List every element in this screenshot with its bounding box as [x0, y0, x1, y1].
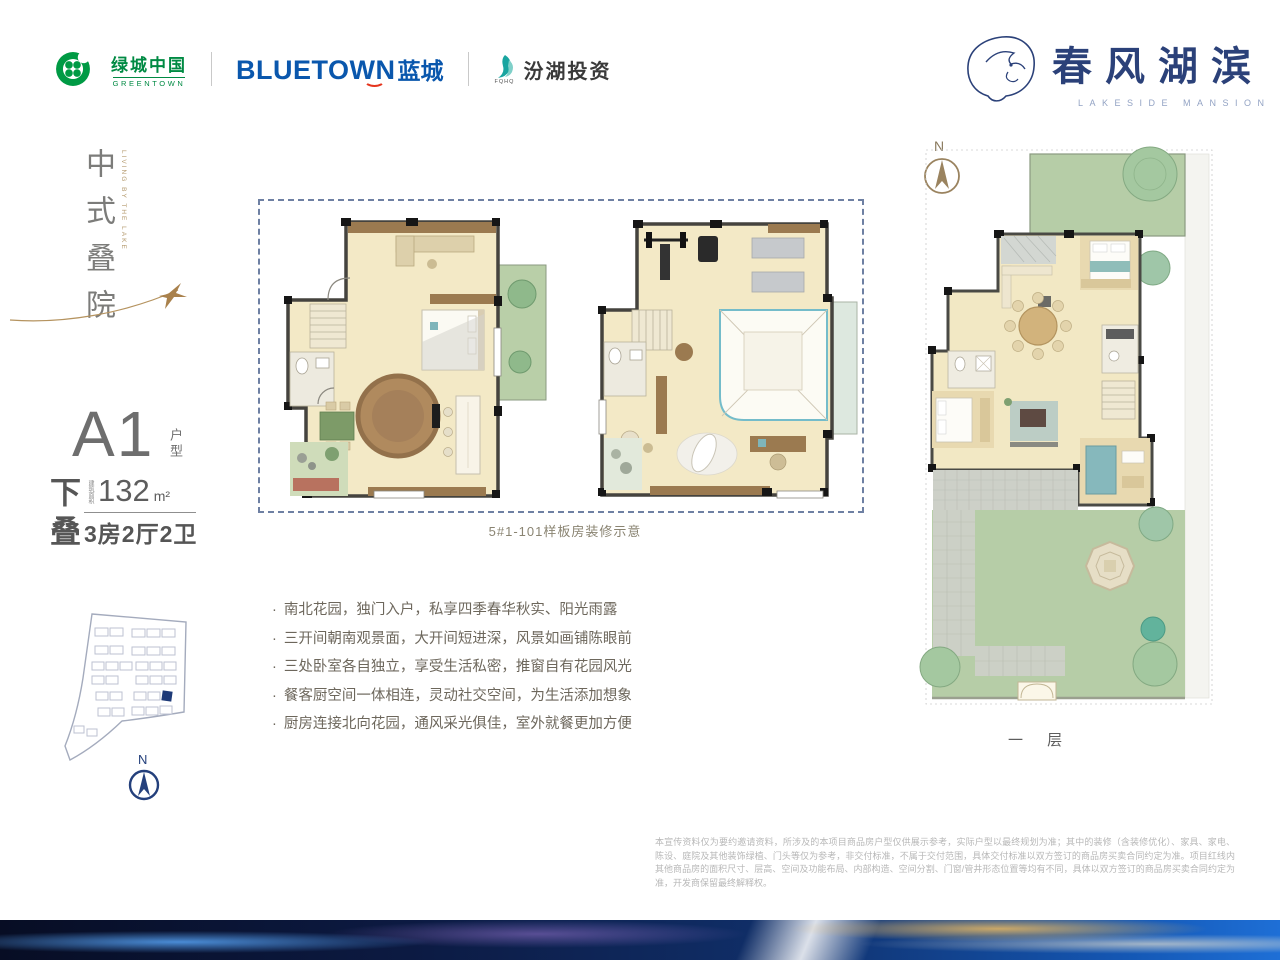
brand-name-en: LAKESIDE MANSION — [1078, 98, 1271, 108]
bed — [422, 310, 484, 370]
brand-bird-icon — [964, 34, 1040, 106]
greentown-name-cn: 绿城中国 — [111, 51, 187, 76]
ground-floor-plan — [918, 146, 1218, 726]
greentown-name-en: GREENTOWN — [113, 77, 186, 88]
partner-logos: 绿城中国 GREENTOWN BLUETOWN 蓝城 FQHQ 汾湖投资 — [55, 46, 612, 92]
feature-item: 餐客厨空间一体相连，灵动社交空间，为生活添加想象 — [272, 682, 612, 711]
fenhu-logo-icon — [493, 54, 517, 80]
bluetown-logo: BLUETOWN 蓝城 — [236, 52, 444, 86]
feature-item: 三处卧室各自独立，享受生活私密，推窗自有花园风光 — [272, 653, 612, 682]
feature-item: 南北花园，独门入户，私享四季春华秋实、阳光雨露 — [272, 596, 612, 625]
bathroom — [290, 352, 334, 406]
bedroom-southeast — [1080, 438, 1150, 503]
terrace-pavement — [933, 470, 1078, 510]
area-value: 132 — [98, 476, 150, 506]
unit-code-suffix: 户型 — [168, 428, 183, 460]
showroom-caption: 5#1-101样板房装修示意 — [300, 521, 830, 540]
swallow-icon — [159, 283, 187, 309]
tree — [1133, 642, 1177, 686]
stairs — [310, 304, 346, 348]
greentown-logo-icon — [55, 51, 91, 87]
logo-divider — [211, 52, 212, 86]
gazebo — [1086, 542, 1134, 590]
lower-floor-plan — [280, 210, 572, 506]
bedroom-west — [932, 391, 994, 448]
wood-counter — [656, 376, 667, 434]
bath-west — [948, 351, 995, 388]
floor-label: 一 层 — [1008, 729, 1072, 750]
swallow-flourish — [8, 276, 193, 328]
feature-item: 三开间朝南观景面，大开间短进深，风景如画铺陈眼前 — [272, 625, 612, 654]
brand-name-cn: 春风湖滨 — [1052, 34, 1271, 92]
legal-disclaimer: 本宣传资料仅为要约邀请资料，所涉及的本项目商品房户型仅供展示参考，实际户型以最终… — [655, 836, 1235, 890]
unit-code: A1 — [72, 402, 154, 466]
brochure-page: 绿城中国 GREENTOWN BLUETOWN 蓝城 FQHQ 汾湖投资 — [0, 0, 1280, 960]
area-unit: m² — [154, 486, 170, 506]
unit-rooms: 3房2厅2卫 — [84, 515, 197, 549]
compass-needle — [138, 772, 150, 796]
fenhu-logo: FQHQ 汾湖投资 — [493, 54, 612, 85]
slogan-english: LIVING BY THE LAKE — [120, 150, 127, 251]
bathroom — [604, 342, 646, 396]
small-garden — [604, 438, 642, 490]
feature-list: 南北花园，独门入户，私享四季春华秋实、阳光雨露 三开间朝南观景面，大开间短进深，… — [272, 596, 612, 739]
site-compass-icon — [127, 768, 161, 802]
tree — [1141, 617, 1165, 641]
logo-divider — [468, 52, 469, 86]
upper-floor-plan — [592, 210, 864, 506]
bluetown-red-arc — [364, 74, 385, 87]
light-streak-banner — [0, 920, 1280, 960]
area-divider-line — [84, 512, 196, 513]
garden-gate — [1018, 682, 1056, 700]
fenhu-abbr: FQHQ — [495, 79, 515, 85]
fenhu-name-cn: 汾湖投资 — [524, 55, 612, 84]
site-plan — [62, 608, 214, 770]
living-room — [1004, 396, 1064, 448]
tree — [920, 647, 960, 687]
hall-bath — [1102, 325, 1138, 373]
entry-porch — [1001, 236, 1056, 264]
gym-mat — [752, 238, 804, 258]
brand-logo: 春风湖滨 LAKESIDE MANSION — [964, 34, 1271, 108]
greentown-logo-text: 绿城中国 GREENTOWN — [111, 51, 187, 88]
tree — [1139, 507, 1173, 541]
stairs — [1102, 381, 1135, 419]
wood-stool — [675, 343, 693, 361]
dining-table — [1005, 293, 1072, 360]
tree — [1123, 147, 1177, 201]
bedroom-north — [1080, 236, 1138, 290]
unit-area: 建筑面积 132 m² — [86, 476, 170, 506]
round-rug — [358, 376, 440, 456]
unit-stack-label: 下叠 — [44, 476, 80, 554]
master-suite-tub-room — [720, 310, 827, 420]
site-highlight-unit — [161, 690, 172, 701]
area-label: 建筑面积 — [86, 480, 95, 506]
feature-item: 厨房连接北向花园，通风采光俱佳，室外就餐更加方便 — [272, 710, 612, 739]
site-compass-label: N — [138, 752, 147, 767]
gym-mat — [752, 272, 804, 292]
bluetown-name-cn: 蓝城 — [398, 52, 444, 86]
rock-garden — [290, 442, 348, 496]
